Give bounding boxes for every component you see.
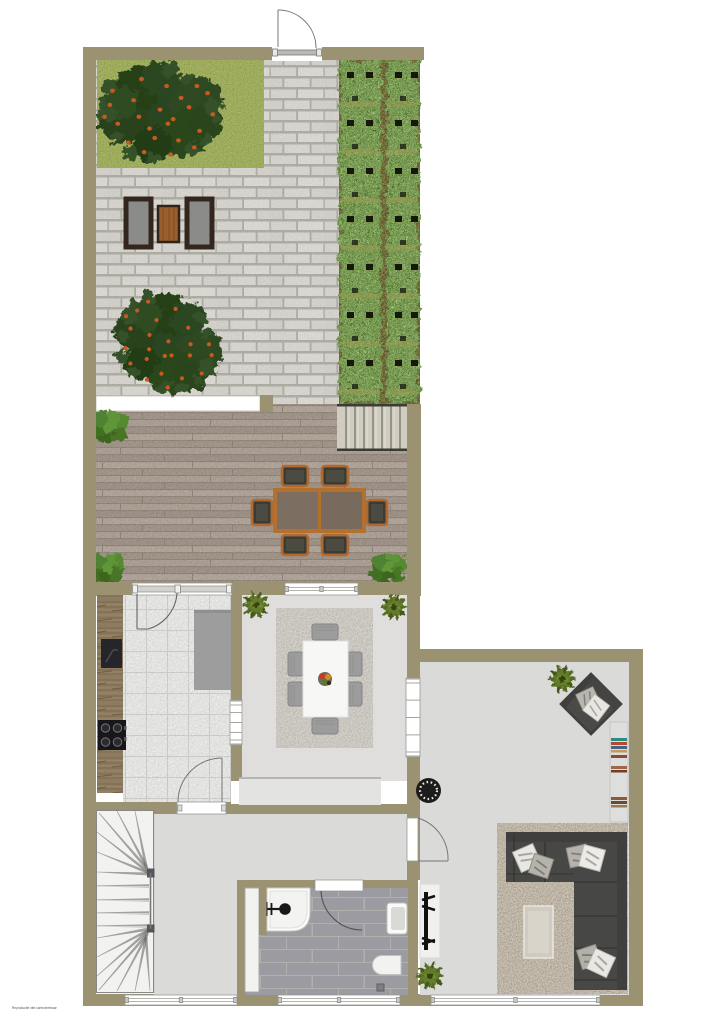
svg-text:Reproductie niet controleerbaa: Reproductie niet controleerbaar — [12, 1006, 58, 1010]
